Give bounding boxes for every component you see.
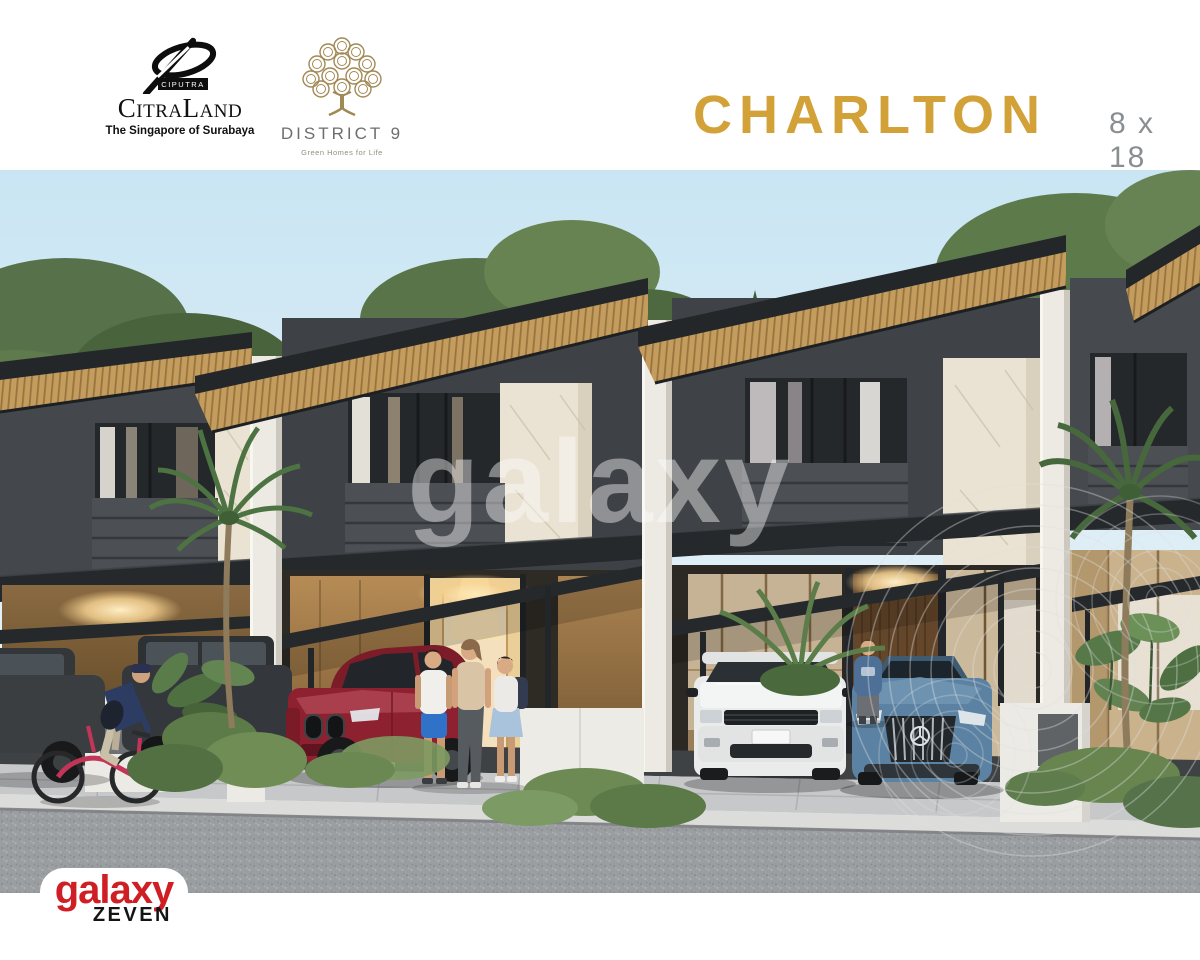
district9-logo: DISTRICT 9 Green Homes for Life — [272, 34, 412, 157]
product-title: CHARLTON — [693, 88, 1047, 142]
render-image: galaxy — [0, 170, 1200, 893]
citraland-logo-name: CitraLand — [100, 95, 260, 122]
district9-logo-name: DISTRICT 9 — [272, 124, 412, 144]
watermark-text: galaxy — [407, 416, 792, 548]
district9-tagline: Green Homes for Life — [272, 148, 412, 157]
product-title-block: CHARLTON 8 x 18 — [693, 88, 1200, 175]
ciputra-label: CIPUTRA — [161, 80, 204, 89]
product-size: 8 x 18 — [1109, 107, 1200, 175]
citraland-logo-mark: CIPUTRA — [132, 34, 228, 94]
galaxy-zeven-logo: galaxy ZEVEN — [40, 868, 188, 938]
citraland-tagline: The Singapore of Surabaya — [100, 125, 260, 137]
district9-logo-mark — [299, 34, 385, 116]
header: CIPUTRA CitraLand The Singapore of Surab… — [0, 0, 1200, 170]
citraland-logo: CIPUTRA CitraLand The Singapore of Surab… — [100, 34, 260, 137]
townhouse-render: galaxy — [0, 170, 1200, 893]
